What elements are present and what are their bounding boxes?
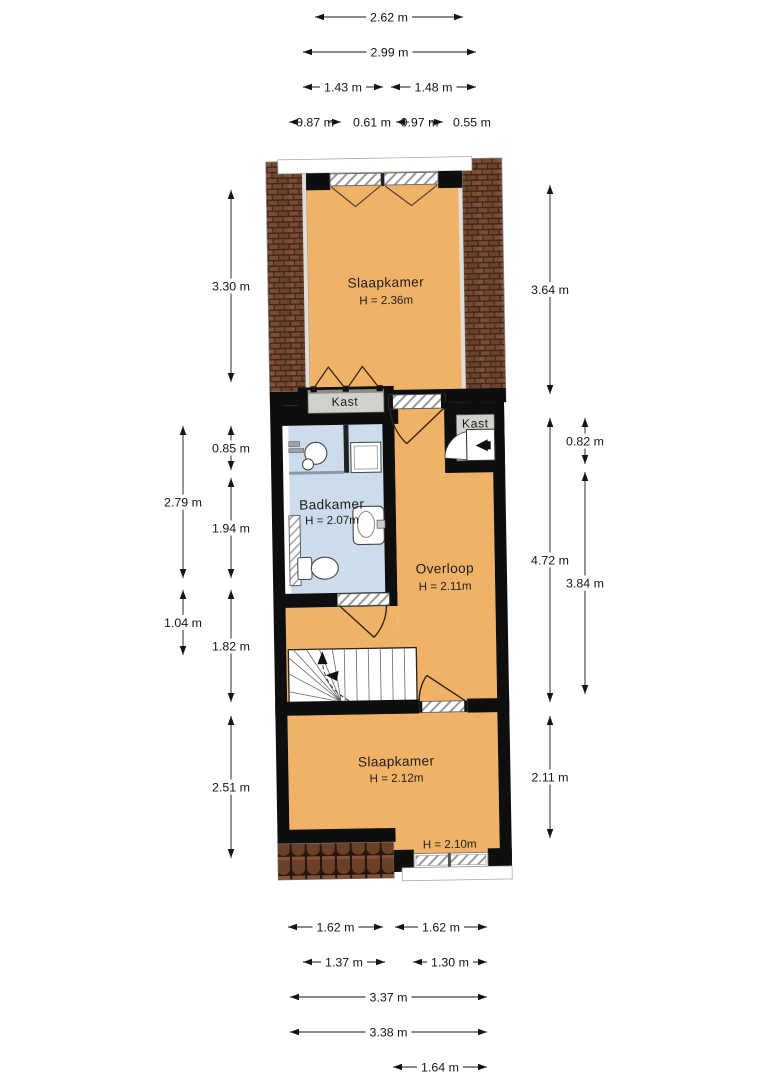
dim-arrow-right [374, 924, 383, 931]
window-top-2 [384, 172, 438, 185]
window-bottom-sill [402, 866, 512, 881]
dimension-bottom-5: 3.38 m [290, 1025, 487, 1040]
dimension-label-left-2: 2.79 m [164, 495, 202, 509]
window-bottom-mullion [448, 853, 451, 867]
dimension-label-right-1: 0.82 m [566, 434, 604, 448]
dim-arrow-right [478, 1064, 487, 1071]
dim-arrow-right [478, 959, 487, 966]
dim-arrow-top [547, 185, 554, 194]
dimension-label-right-0: 3.64 m [531, 283, 569, 297]
door-bottom-bedroom-threshold [419, 701, 467, 713]
dimension-label-top-4: 0.87 m [296, 115, 334, 129]
dimension-label-left-1: 0.85 m [212, 441, 250, 455]
wall-landing-bottom-left [275, 700, 419, 717]
dimension-top-2: 1.43 m [303, 80, 383, 95]
dim-arrow-left [393, 1064, 402, 1071]
dimension-label-right-4: 2.11 m [532, 770, 569, 784]
dimension-top-4: 0.87 m [289, 115, 341, 129]
bathroom-height: H = 2.07m [305, 514, 359, 528]
dim-arrow-top [547, 418, 554, 427]
dimension-bottom-3: 1.30 m [413, 955, 487, 970]
dimension-label-right-2: 4.72 m [531, 553, 569, 567]
dim-arrow-bottom [547, 385, 554, 394]
dim-arrow-left [290, 994, 299, 1001]
wall-top-left [306, 173, 330, 190]
dim-arrow-left [303, 84, 312, 91]
washbasin-drain [302, 459, 313, 470]
dimension-label-top-5: 0.61 m [353, 115, 391, 129]
dimension-label-top-0: 2.62 m [370, 10, 408, 24]
dimension-right-1: 0.82 m [562, 418, 608, 464]
dim-arrow-right [454, 14, 463, 21]
dimension-bottom-4: 3.37 m [290, 990, 487, 1005]
dim-arrow-left [413, 959, 422, 966]
dormer-height-note: H = 2.10m [423, 838, 477, 852]
dim-arrow-bottom [228, 569, 235, 578]
dimension-label-right-3: 3.84 m [566, 576, 604, 590]
dim-arrow-bottom [180, 569, 187, 578]
dimension-label-top-2: 1.43 m [324, 80, 362, 94]
sink-basin [357, 511, 374, 537]
dimension-label-left-5: 1.82 m [212, 639, 250, 653]
dimension-bottom-2: 1.37 m [303, 955, 385, 970]
bedroom-bottom-label: Slaapkamer [358, 753, 435, 769]
dim-arrow-top [228, 590, 235, 599]
dimension-right-0: 3.64 m [527, 185, 573, 394]
dim-arrow-top [582, 418, 589, 427]
dimension-top-7: 0.55 m [453, 115, 491, 129]
dim-arrow-bottom [547, 693, 554, 702]
dimension-left-5: 1.82 m [208, 590, 254, 702]
dimension-left-4: 1.04 m [160, 590, 206, 655]
dim-arrow-top [228, 716, 235, 725]
dimension-left-2: 2.79 m [160, 426, 206, 578]
dimension-bottom-0: 1.62 m [288, 920, 383, 935]
dim-arrow-bottom [228, 461, 235, 470]
door-bathroom-threshold [337, 593, 389, 606]
dimension-label-left-0: 3.30 m [212, 279, 250, 293]
dim-arrow-bottom [547, 829, 554, 838]
dimension-top-6: 0.97 m [396, 115, 443, 129]
dim-arrow-right [467, 84, 476, 91]
tap-icon-base [486, 441, 491, 449]
floorplan-canvas: Kast Kast [0, 0, 768, 1086]
wall-landing-bottom-right [467, 698, 509, 713]
washbasin-arm [289, 448, 304, 452]
dim-arrow-right [374, 84, 383, 91]
dim-arrow-bottom [582, 455, 589, 464]
dimension-right-2: 4.72 m [527, 418, 573, 702]
dimension-top-1: 2.99 m [303, 45, 476, 60]
toilet-tank [298, 557, 312, 579]
dimension-right-4: 2.11 m [527, 716, 573, 838]
bathroom-divider-vertical [343, 425, 349, 473]
wall-tiles-top [277, 828, 395, 844]
dimension-left-6: 2.51 m [208, 716, 254, 858]
dim-arrow-bottom [582, 685, 589, 694]
door-cap [419, 701, 422, 712]
bedroom-bottom-height: H = 2.12m [369, 771, 423, 785]
dimension-bottom-1: 1.62 m [395, 920, 487, 935]
closet-top-label: Kast [331, 395, 358, 409]
bedroom-top-height: H = 2.36m [359, 294, 413, 308]
dimension-left-0: 3.30 m [208, 190, 254, 382]
sink-faucet [377, 520, 385, 528]
dimension-left-3: 1.94 m [208, 478, 254, 578]
washbasin-faucet [289, 442, 300, 447]
dimension-right-3: 3.84 m [562, 472, 608, 694]
toilet-bowl [311, 557, 338, 579]
dim-arrow-bottom [228, 849, 235, 858]
dim-arrow-top [180, 590, 187, 599]
dimension-label-bottom-0: 1.62 m [317, 920, 355, 934]
window-mullion [381, 173, 384, 186]
dimension-top-5: 0.61 m [353, 115, 391, 129]
bathroom-label: Badkamer [299, 496, 364, 512]
dim-arrow-top [228, 190, 235, 199]
bedroom-top-label: Slaapkamer [347, 274, 424, 290]
dim-arrow-right [478, 994, 487, 1001]
landing-label: Overloop [416, 561, 475, 577]
dimension-label-top-1: 2.99 m [371, 45, 409, 59]
dim-arrow-left [303, 959, 312, 966]
floor-plan: Kast Kast [266, 156, 515, 883]
dim-arrow-left [288, 924, 297, 931]
dim-arrow-top [228, 478, 235, 487]
dim-arrow-left [395, 924, 404, 931]
door-cap [389, 395, 393, 409]
dimension-label-left-4: 1.04 m [164, 616, 202, 630]
dimension-left-1: 0.85 m [208, 426, 254, 470]
dim-arrow-left [315, 14, 324, 21]
dimension-label-bottom-2: 1.37 m [325, 955, 363, 969]
window-top-1 [330, 173, 381, 186]
dim-arrow-top [180, 426, 187, 435]
dimension-label-top-7: 0.55 m [453, 115, 491, 129]
dim-arrow-top [228, 426, 235, 435]
dim-arrow-left [290, 1029, 299, 1036]
dimension-top-0: 2.62 m [315, 10, 463, 25]
door-top-bedroom-threshold [389, 394, 445, 409]
dim-arrow-left [391, 84, 400, 91]
dim-arrow-right [478, 924, 487, 931]
roof-tiles-bottom [278, 842, 395, 880]
dimension-label-bottom-4: 3.37 m [370, 990, 408, 1004]
landing-height: H = 2.11m [419, 580, 472, 594]
roof-strip-right [462, 158, 506, 403]
dim-arrow-right [478, 1029, 487, 1036]
dim-arrow-bottom [228, 373, 235, 382]
door-cap [464, 701, 467, 712]
dimension-label-left-3: 1.94 m [212, 521, 250, 535]
dimension-label-left-6: 2.51 m [212, 780, 250, 794]
dim-arrow-top [547, 716, 554, 725]
dim-arrow-right [467, 49, 476, 56]
dim-arrow-bottom [180, 646, 187, 655]
dimension-top-3: 1.48 m [391, 80, 476, 95]
wall-top-right [438, 171, 462, 188]
dimension-label-bottom-6: 1.64 m [421, 1060, 459, 1074]
dim-arrow-bottom [228, 693, 235, 702]
floorplan-page: Kast Kast [0, 0, 768, 1086]
dimension-label-bottom-5: 3.38 m [370, 1025, 408, 1039]
dimension-label-top-3: 1.48 m [415, 80, 453, 94]
dimension-label-bottom-1: 1.62 m [422, 920, 460, 934]
dim-arrow-right [376, 959, 385, 966]
shower [351, 442, 382, 473]
dim-arrow-top [582, 472, 589, 481]
closet-right-label: Kast [462, 416, 489, 430]
dimension-label-top-6: 0.97 m [401, 115, 439, 129]
dimension-label-bottom-3: 1.30 m [431, 955, 469, 969]
dimension-bottom-6: 1.64 m [393, 1060, 487, 1075]
dim-arrow-left [303, 49, 312, 56]
